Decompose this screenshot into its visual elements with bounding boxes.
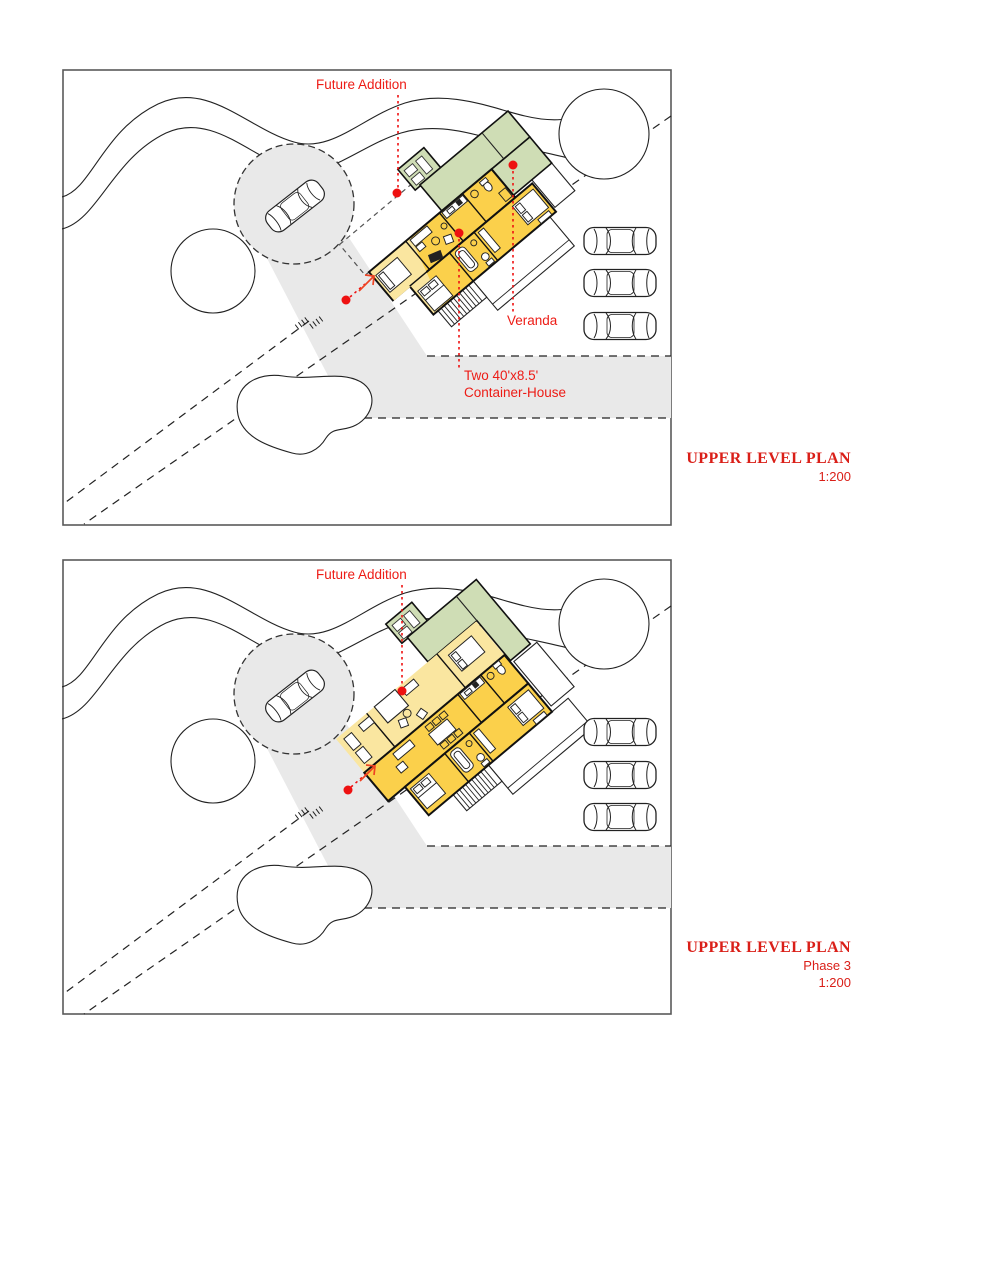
tree-circle <box>559 579 649 669</box>
title-block-top: UPPER LEVEL PLAN 1:200 <box>686 450 851 485</box>
leader-dot <box>398 687 407 696</box>
tree-circle <box>559 89 649 179</box>
leader-dot <box>393 189 402 198</box>
parked-car-icon <box>584 313 656 340</box>
tree-circle <box>171 229 255 313</box>
plan-scale: 1:200 <box>686 975 851 991</box>
plan-title: UPPER LEVEL PLAN <box>686 450 851 468</box>
site-plan-bottom-drawing: Future Addition <box>62 559 672 1015</box>
leader-dot <box>344 786 353 795</box>
parked-car-icon <box>584 719 656 746</box>
tree-circle <box>171 719 255 803</box>
label-container-line1: Two 40'x8.5' <box>464 368 538 383</box>
site-plan-top-drawing: Future Addition Veranda Two 40'x8.5' Con… <box>62 69 672 526</box>
title-block-bottom: UPPER LEVEL PLAN Phase 3 1:200 <box>686 939 851 990</box>
leader-dot <box>455 229 464 238</box>
plan-title: UPPER LEVEL PLAN <box>686 939 851 957</box>
label-container-line2: Container-House <box>464 385 566 400</box>
label-future-addition: Future Addition <box>316 567 407 582</box>
parked-car-icon <box>584 270 656 297</box>
site-plan-panel-bottom: Future Addition <box>62 559 672 1015</box>
plan-sheet: { "colors": { "container_yellow": "#fbd0… <box>0 0 987 1276</box>
plan-phase: Phase 3 <box>686 958 851 974</box>
label-veranda: Veranda <box>507 313 558 328</box>
parked-car-icon <box>584 804 656 831</box>
parked-car-icon <box>584 762 656 789</box>
plan-scale: 1:200 <box>686 469 851 485</box>
parked-car-icon <box>584 228 656 255</box>
leader-dot <box>342 296 351 305</box>
label-future-addition: Future Addition <box>316 77 407 92</box>
leader-dot <box>509 161 518 170</box>
site-plan-panel-top: Future Addition Veranda Two 40'x8.5' Con… <box>62 69 672 526</box>
